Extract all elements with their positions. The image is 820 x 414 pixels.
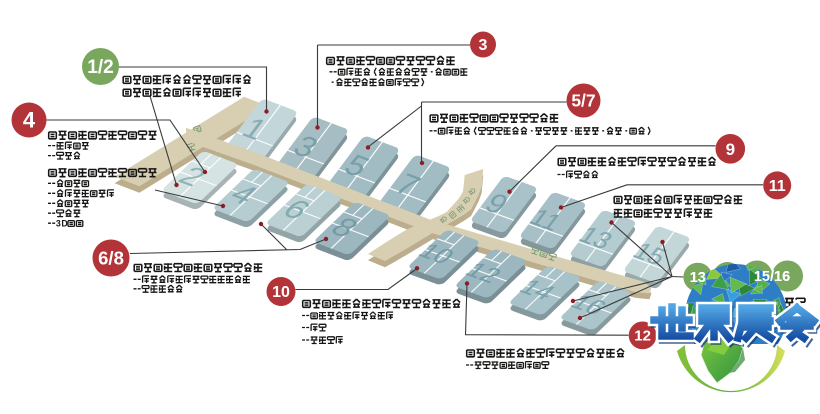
svg-text:5/7: 5/7	[571, 91, 595, 111]
svg-text:6/8: 6/8	[98, 248, 124, 269]
svg-text:3: 3	[479, 37, 488, 54]
svg-text:11: 11	[769, 178, 786, 195]
svg-text:1/2: 1/2	[87, 57, 113, 78]
svg-text:15/16: 15/16	[754, 269, 790, 285]
svg-text:3: 3	[56, 218, 61, 228]
svg-text:D: D	[61, 218, 67, 228]
svg-text:9: 9	[726, 140, 735, 159]
svg-text:10: 10	[272, 284, 290, 301]
svg-text:13: 13	[690, 270, 706, 286]
svg-text:4: 4	[23, 108, 36, 133]
svg-text:12: 12	[634, 328, 651, 345]
